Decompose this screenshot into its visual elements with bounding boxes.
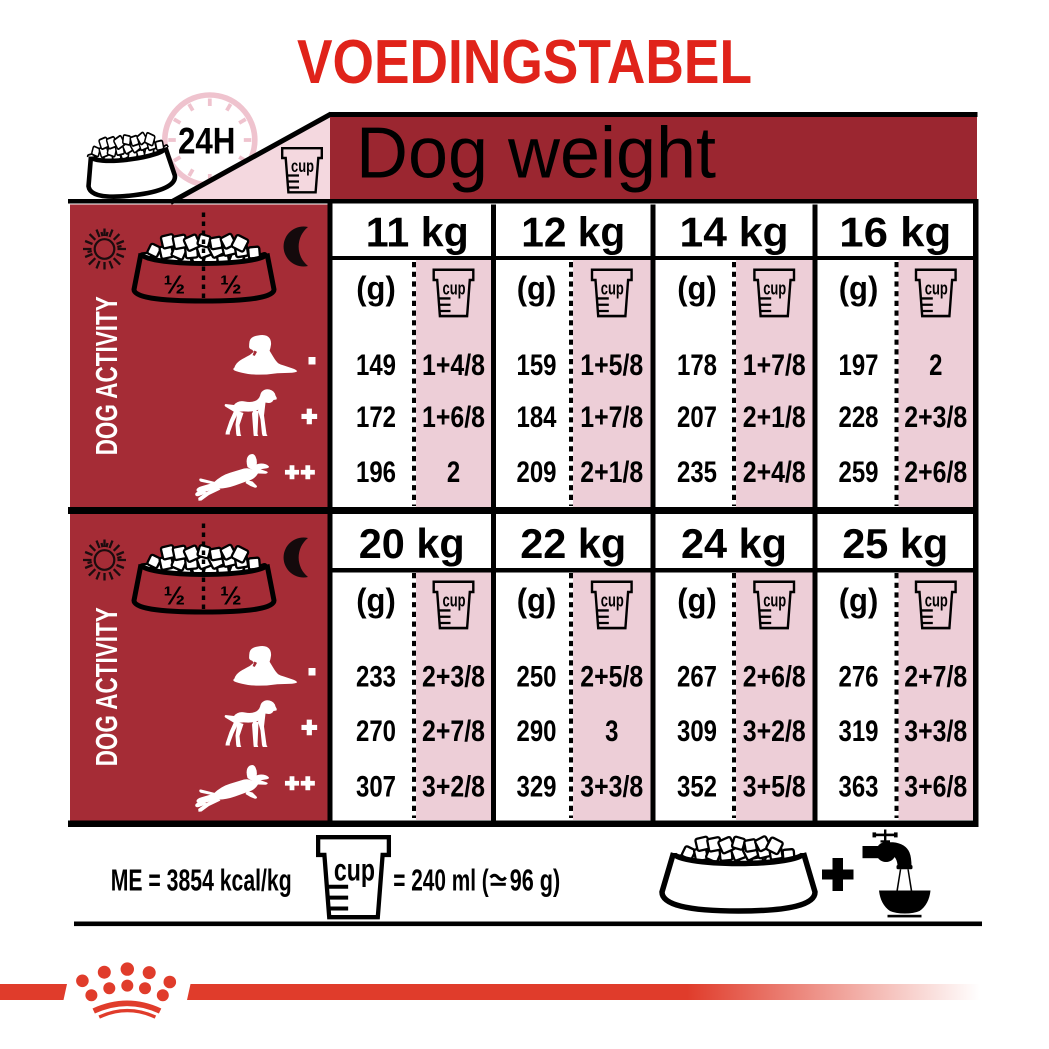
svg-text:250: 250: [517, 661, 557, 694]
svg-text:24H: 24H: [178, 120, 236, 162]
svg-text:209: 209: [517, 456, 557, 489]
svg-text:11 kg: 11 kg: [366, 209, 469, 256]
svg-text:(g): (g): [839, 270, 879, 307]
svg-text:228: 228: [839, 401, 879, 434]
svg-text:2+1/8: 2+1/8: [580, 456, 643, 489]
svg-text:½: ½: [220, 270, 242, 300]
svg-text:3+3/8: 3+3/8: [580, 771, 643, 804]
svg-text:319: 319: [839, 715, 879, 748]
svg-text:= 240 ml (: = 240 ml (: [393, 862, 489, 897]
svg-text:2+7/8: 2+7/8: [422, 715, 485, 748]
svg-text:Dog weight: Dog weight: [356, 114, 716, 194]
svg-text:235: 235: [677, 456, 717, 489]
svg-text:159: 159: [517, 349, 557, 382]
svg-text:22 kg: 22 kg: [520, 520, 626, 567]
svg-text:2+5/8: 2+5/8: [580, 661, 643, 694]
svg-text:233: 233: [356, 661, 396, 694]
svg-text:(g): (g): [356, 270, 396, 307]
svg-text:2+3/8: 2+3/8: [422, 661, 485, 694]
svg-text:270: 270: [356, 715, 396, 748]
svg-text:½: ½: [163, 581, 185, 611]
svg-text:25 kg: 25 kg: [842, 520, 948, 567]
svg-text:3+3/8: 3+3/8: [904, 715, 967, 748]
svg-text:2+6/8: 2+6/8: [904, 456, 967, 489]
svg-text:ME = 3854 kcal/kg: ME = 3854 kcal/kg: [111, 862, 292, 897]
svg-text:2: 2: [447, 456, 460, 489]
svg-text:24 kg: 24 kg: [681, 520, 787, 567]
svg-text:12 kg: 12 kg: [521, 209, 625, 256]
svg-text:307: 307: [356, 771, 396, 804]
svg-text:178: 178: [677, 349, 717, 382]
svg-text:184: 184: [517, 401, 557, 434]
svg-text:(g): (g): [677, 270, 717, 307]
svg-text:2: 2: [929, 349, 942, 382]
svg-text:1+5/8: 1+5/8: [580, 349, 643, 382]
svg-text:(g): (g): [517, 582, 557, 619]
svg-text:1+7/8: 1+7/8: [743, 349, 806, 382]
svg-text:259: 259: [839, 456, 879, 489]
svg-text:1+6/8: 1+6/8: [422, 401, 485, 434]
svg-text:172: 172: [356, 401, 396, 434]
svg-text:3: 3: [605, 715, 618, 748]
svg-text:14 kg: 14 kg: [680, 209, 789, 256]
svg-text:2+1/8: 2+1/8: [743, 401, 806, 434]
svg-text:149: 149: [356, 349, 396, 382]
svg-text:VOEDINGSTABEL: VOEDINGSTABEL: [297, 27, 752, 97]
svg-text:2+7/8: 2+7/8: [904, 661, 967, 694]
svg-text:3+5/8: 3+5/8: [743, 771, 806, 804]
svg-text:352: 352: [677, 771, 717, 804]
svg-text:1+4/8: 1+4/8: [422, 349, 485, 382]
svg-text:276: 276: [839, 661, 879, 694]
svg-text:(g): (g): [517, 270, 557, 307]
svg-text:(g): (g): [677, 582, 717, 619]
svg-text:267: 267: [677, 661, 717, 694]
svg-text:197: 197: [839, 349, 879, 382]
svg-text:196: 196: [356, 456, 396, 489]
svg-text:1+7/8: 1+7/8: [580, 401, 643, 434]
svg-text:2+3/8: 2+3/8: [904, 401, 967, 434]
svg-text:2+6/8: 2+6/8: [743, 661, 806, 694]
svg-text:2+4/8: 2+4/8: [743, 456, 806, 489]
svg-text:290: 290: [517, 715, 557, 748]
svg-text:½: ½: [163, 270, 185, 300]
svg-text:3+2/8: 3+2/8: [743, 715, 806, 748]
svg-text:96 g): 96 g): [510, 862, 561, 897]
svg-text:3+6/8: 3+6/8: [904, 771, 967, 804]
svg-text:DOG ACTIVITY: DOG ACTIVITY: [89, 296, 124, 455]
svg-text:329: 329: [517, 771, 557, 804]
svg-text:DOG ACTIVITY: DOG ACTIVITY: [89, 607, 124, 766]
svg-text:3+2/8: 3+2/8: [422, 771, 485, 804]
svg-text:363: 363: [839, 771, 879, 804]
svg-text:16 kg: 16 kg: [839, 209, 951, 256]
svg-text:(g): (g): [356, 582, 396, 619]
svg-text:20 kg: 20 kg: [359, 520, 465, 567]
svg-text:207: 207: [677, 401, 717, 434]
svg-text:309: 309: [677, 715, 717, 748]
svg-text:½: ½: [220, 581, 242, 611]
svg-text:(g): (g): [839, 582, 879, 619]
